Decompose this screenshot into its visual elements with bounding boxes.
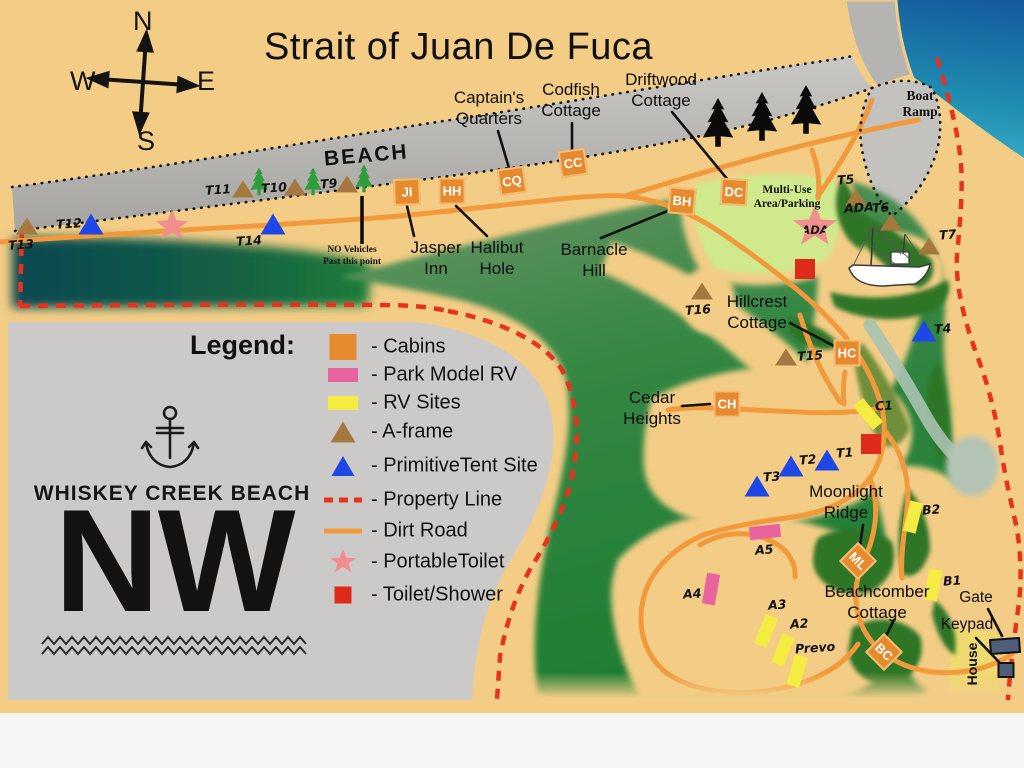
legend-label-cabins: - Cabins (371, 336, 445, 359)
legend-swatch-rv-sites (328, 396, 358, 410)
site-A3-label: A3 (767, 596, 786, 612)
cabin-BC: BC (865, 633, 903, 671)
cabin-BH: BH (667, 186, 696, 215)
keypad-box (998, 662, 1015, 678)
site-T16-marker (691, 283, 713, 300)
no-vehicles-notice: NO Vehicles Past this point (323, 245, 381, 269)
callout-driftwood-cottage: Driftwood Cottage (625, 70, 697, 111)
site-T3-label: T3 (762, 468, 780, 484)
pine-tree-icon-2 (742, 92, 782, 150)
site-T6-marker (880, 214, 902, 231)
legend-label-toilet-shower: - Toilet/Shower (371, 584, 503, 607)
callout-jasper-inn: Jasper Inn (410, 238, 461, 279)
legend-label-portable-toilet: - PortableToilet (371, 551, 504, 574)
map: Strait of Juan De Fuca N W E S BEACH Boa… (0, 0, 1024, 713)
site-T11-marker (232, 181, 254, 198)
site-T14-marker (261, 214, 286, 235)
site-T9-label: T9 (319, 175, 337, 191)
callout-barnacle-hill: Barnacle Hill (560, 240, 627, 281)
legend-swatch-park-model (328, 368, 358, 382)
legend-swatch-cabins (330, 334, 357, 360)
site-A3-marker (754, 614, 778, 648)
legend-swatch-dirt-road (324, 529, 362, 534)
site-T13-marker (16, 218, 38, 235)
cabin-DC: DC (720, 178, 748, 206)
logo-initials: NW (54, 492, 293, 631)
site-A2-label: A2 (789, 615, 808, 631)
site-T12-marker (79, 214, 104, 235)
cabin-JI: JI (393, 178, 421, 206)
pine-tree-icon-3 (786, 85, 826, 143)
site-T4-label: T4 (933, 320, 951, 336)
legend-swatch-property-line (324, 498, 362, 503)
site-T11-label: T11 (205, 181, 232, 198)
site-A5-label: A5 (754, 541, 773, 557)
compass-east-label: E (197, 66, 215, 97)
cabin-CH: CH (714, 391, 741, 418)
legend-label-property-line: - Property Line (371, 489, 502, 512)
site-T13-label: T13 (8, 236, 35, 253)
legend-label-rv-sites: - RV Sites (371, 392, 461, 415)
boat-ramp-label: Boat Ramp (902, 88, 937, 120)
site-A4-marker (702, 573, 720, 606)
site-A4-label: A4 (682, 585, 701, 601)
multi-use-area-label: Multi-Use Area/Parking (754, 183, 821, 212)
callout-cedar-heights: Cedar Heights (623, 388, 681, 429)
site-T14-label: T14 (236, 232, 263, 249)
callout-codfish-cottage: Codfish Cottage (541, 80, 601, 121)
site-Prevo-marker (786, 654, 807, 687)
cabin-CC: CC (558, 148, 588, 178)
site-B2-marker (903, 500, 923, 533)
legend-swatch-a-frame (331, 422, 356, 443)
callout-moonlight-ridge: Moonlight Ridge (809, 482, 883, 523)
toilet-shower-icon-1 (795, 259, 815, 279)
legend-heading: Legend: (190, 330, 295, 361)
site-B2-label: B2 (921, 501, 940, 517)
site-T10-label: T10 (261, 179, 288, 196)
callout-captains-quarters: Captain's Quarters (454, 88, 524, 129)
legend-label-tent: - PrimitiveTent Site (371, 455, 538, 478)
campground-map-page: Strait of Juan De Fuca N W E S BEACH Boa… (0, 0, 1024, 768)
compass-south-label: S (137, 126, 155, 157)
compass-north-label: N (133, 6, 153, 37)
site-T12-label: T12 (56, 215, 83, 232)
house-label: House (964, 643, 980, 686)
site-B1-label: B1 (942, 572, 961, 588)
cabin-ML: ML (839, 542, 877, 580)
site-T15-marker (775, 349, 797, 366)
site-T5-label: T5 (836, 171, 854, 187)
site-T2-label: T2 (798, 451, 816, 467)
site-T1-label: T1 (835, 444, 853, 460)
ada-star-label: ADA (801, 218, 828, 237)
cabin-CQ: CQ (497, 166, 527, 196)
site-C1-label: C1 (874, 397, 893, 413)
callout-halibut-hole: Halibut Hole (471, 238, 524, 279)
gate-bar (989, 637, 1021, 655)
site-T15-label: T15 (797, 347, 824, 364)
cabin-HH: HH (439, 178, 466, 205)
site-T7-marker (918, 238, 940, 255)
portable-toilet-icon-1 (155, 210, 189, 243)
legend-label-park-model: - Park Model RV (371, 364, 517, 387)
callout-keypad: Keypad (941, 616, 994, 635)
callout-beachcomber-cottage: Beachcomber Cottage (825, 582, 930, 623)
legend-swatch-portable-toilet (330, 549, 357, 575)
legend-label-a-frame: - A-frame (371, 421, 453, 444)
legend-label-dirt-road: - Dirt Road (371, 520, 468, 543)
compass-west-label: W (70, 66, 95, 97)
ada-site-label: ADA (844, 199, 875, 216)
site-T9-marker (336, 176, 358, 193)
site-Prevo-label: Prevo (795, 639, 836, 657)
pine-tree-icon-1 (698, 98, 738, 156)
site-T7-label: T7 (938, 226, 956, 242)
callout-gate: Gate (959, 589, 993, 608)
site-T16-label: T16 (685, 301, 712, 318)
site-A5-marker (749, 524, 781, 540)
callout-hillcrest-cottage: Hillcrest Cottage (727, 292, 787, 333)
site-A2-marker (771, 633, 795, 667)
map-title: Strait of Juan De Fuca (264, 26, 653, 69)
toilet-shower-icon-2 (861, 434, 881, 454)
beach-tree-icon-3 (353, 165, 376, 198)
legend-swatch-tent (332, 456, 355, 476)
cabin-HC: HC (834, 340, 861, 367)
legend-swatch-toilet-shower (335, 587, 352, 604)
